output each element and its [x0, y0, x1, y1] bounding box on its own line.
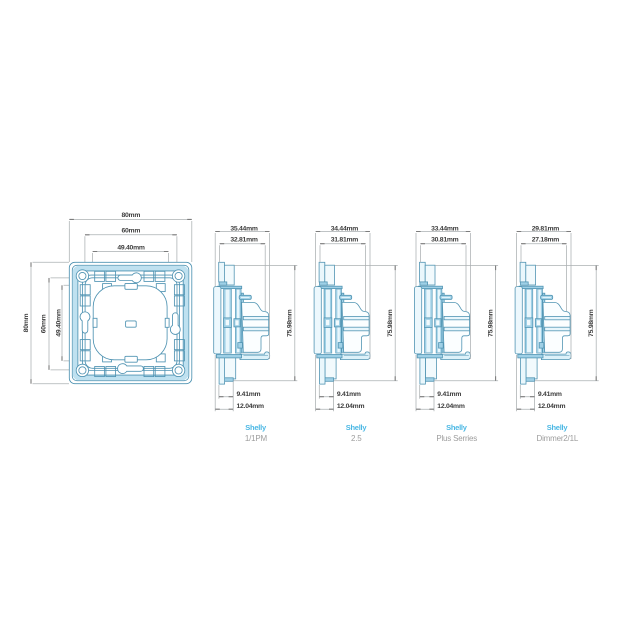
svg-text:Shelly: Shelly — [245, 423, 267, 432]
svg-text:Plus Serries: Plus Serries — [436, 434, 477, 443]
svg-text:9.41mm: 9.41mm — [337, 391, 361, 398]
svg-text:34.44mm: 34.44mm — [331, 225, 359, 232]
svg-text:29.81mm: 29.81mm — [532, 225, 560, 232]
svg-text:31.81mm: 31.81mm — [331, 237, 359, 244]
svg-text:49.40mm: 49.40mm — [55, 309, 62, 337]
svg-text:12.04mm: 12.04mm — [237, 403, 265, 410]
svg-text:60mm: 60mm — [40, 314, 47, 333]
svg-text:Shelly: Shelly — [547, 423, 569, 432]
svg-text:80mm: 80mm — [121, 212, 140, 219]
svg-text:9.41mm: 9.41mm — [237, 391, 261, 398]
svg-text:32.81mm: 32.81mm — [230, 237, 258, 244]
svg-text:12.04mm: 12.04mm — [538, 403, 566, 410]
svg-text:75.98mm: 75.98mm — [387, 309, 394, 337]
svg-text:75.98mm: 75.98mm — [287, 309, 294, 337]
svg-text:12.04mm: 12.04mm — [337, 403, 365, 410]
svg-text:60mm: 60mm — [121, 228, 140, 235]
svg-text:33.44mm: 33.44mm — [431, 225, 459, 232]
svg-text:75.98mm: 75.98mm — [488, 309, 495, 337]
svg-text:49.40mm: 49.40mm — [117, 244, 145, 251]
svg-text:80mm: 80mm — [23, 313, 30, 332]
svg-text:75.98mm: 75.98mm — [588, 309, 595, 337]
svg-text:9.41mm: 9.41mm — [437, 391, 461, 398]
svg-text:35.44mm: 35.44mm — [230, 225, 258, 232]
svg-text:9.41mm: 9.41mm — [538, 391, 562, 398]
svg-text:Dimmer2/1L: Dimmer2/1L — [537, 434, 579, 443]
svg-text:1/1PM: 1/1PM — [245, 434, 268, 443]
svg-text:Shelly: Shelly — [446, 423, 468, 432]
svg-text:30.81mm: 30.81mm — [431, 237, 459, 244]
svg-text:2.5: 2.5 — [351, 434, 362, 443]
svg-text:27.18mm: 27.18mm — [532, 237, 560, 244]
svg-text:12.04mm: 12.04mm — [437, 403, 465, 410]
svg-text:Shelly: Shelly — [346, 423, 368, 432]
